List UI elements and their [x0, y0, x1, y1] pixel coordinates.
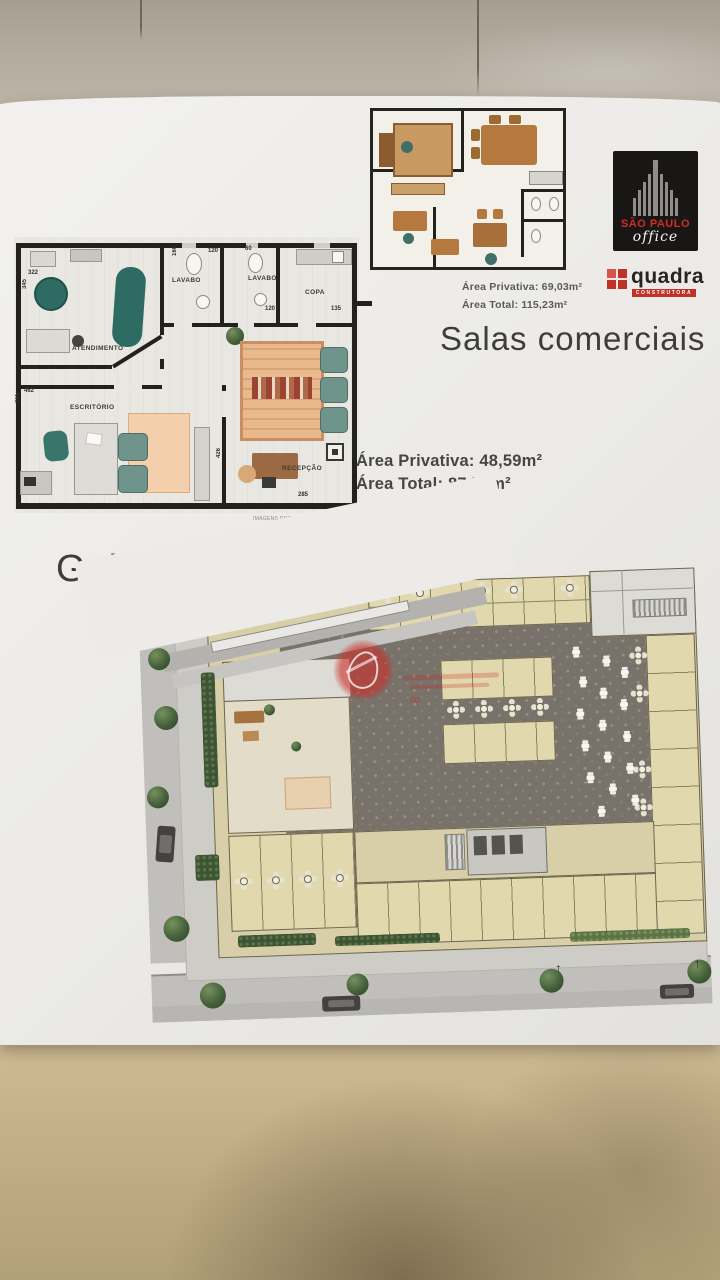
dimension-135: 135 — [331, 306, 341, 312]
logo-office-script: office — [633, 230, 678, 245]
window — [314, 243, 330, 248]
food-court-table — [599, 691, 607, 696]
car-icon — [155, 826, 175, 863]
stairs — [632, 598, 687, 618]
sink — [196, 295, 210, 309]
toilet — [549, 197, 559, 211]
dental-chair — [111, 266, 147, 348]
guest-chair — [477, 209, 487, 219]
cabinet — [70, 249, 102, 262]
plan-wall — [521, 219, 563, 222]
guest-armchair — [118, 465, 148, 493]
plan-wall — [276, 243, 280, 327]
plan-wall — [461, 111, 464, 169]
door-opening — [114, 385, 142, 389]
food-court-table — [621, 670, 629, 675]
food-court-table — [572, 650, 580, 655]
car-icon — [322, 995, 361, 1011]
food-court-table — [602, 658, 610, 663]
tile-grout-line — [140, 0, 142, 40]
room-label-escritorio: ESCRITÓRIO — [70, 404, 114, 411]
reception-desk — [473, 223, 507, 247]
red-grid-icon — [607, 269, 628, 290]
top-plan-area-privativa: Área Privativa: 69,03m² — [462, 278, 582, 296]
meeting-chair — [509, 115, 521, 124]
stairs — [444, 834, 465, 871]
guest-armchair — [118, 433, 148, 461]
armchair — [320, 377, 348, 403]
workstation-desk — [431, 239, 459, 255]
meeting-chair — [471, 129, 480, 141]
armchair — [320, 347, 348, 373]
dimension-426: 426 — [216, 448, 222, 458]
small-floor-plan — [370, 108, 566, 270]
desk-papers — [85, 432, 103, 446]
food-court-table — [598, 809, 606, 814]
quadra-logo: quadra — [607, 267, 704, 290]
developer-name: quadra — [631, 267, 704, 287]
reception-chair — [238, 465, 256, 483]
door-opening — [222, 391, 226, 417]
car-icon — [660, 984, 694, 999]
meeting-table — [481, 125, 537, 165]
room-label-lavabo1: LAVABO — [172, 277, 201, 284]
arrow-up-icon: ↑ — [555, 962, 562, 974]
food-court-table — [579, 679, 587, 684]
dimension-60: 60 — [245, 246, 252, 252]
guest-chair — [493, 209, 503, 219]
dimension-120b: 120 — [265, 306, 275, 312]
main-floor-plan: ATENDIMENTO ESCRITÓRIO LAVABO LAVABO COP… — [14, 237, 359, 513]
sao-paulo-office-logo: SÃO PAULO office — [613, 151, 698, 251]
section-title-salas-comerciais: Salas comerciais — [440, 320, 705, 358]
bookshelf — [391, 183, 445, 195]
plan-wall — [521, 189, 563, 192]
armchair — [320, 407, 348, 433]
toilet — [248, 253, 263, 273]
window — [182, 243, 196, 248]
side-counter — [30, 251, 56, 267]
room-label-recepcao: RECEPÇÃO — [282, 465, 322, 472]
rug-center-motif — [252, 377, 312, 399]
food-court-table — [599, 723, 607, 728]
work-desk — [26, 329, 70, 353]
door-opening — [298, 323, 316, 327]
plan-wall — [16, 365, 112, 369]
dimension-285: 285 — [298, 492, 308, 498]
dimension-120a: 120 — [208, 248, 218, 254]
printer — [24, 477, 36, 486]
food-court-table — [581, 743, 589, 748]
meeting-chair — [471, 147, 480, 159]
top-plan-area-total: Área Total: 115,23m² — [462, 296, 582, 314]
plan-wall — [433, 207, 436, 267]
dimension-345: 345 — [22, 279, 28, 289]
wall-light-reflection — [430, 20, 720, 104]
sink — [254, 293, 267, 306]
gallery-floor-plan: ↑ ↑ ∞ — [138, 567, 713, 1022]
dimension-265: 265 — [15, 393, 21, 403]
plan-wall — [16, 503, 357, 509]
top-plan-area-text: Área Privativa: 69,03m² Área Total: 115,… — [462, 278, 582, 314]
hedge — [195, 854, 220, 881]
storage-cabinet — [194, 427, 210, 501]
dimension-160: 160 — [172, 246, 178, 256]
food-court-table — [623, 734, 631, 739]
food-court-table — [631, 798, 639, 803]
office-desk — [379, 133, 393, 167]
skyline-icon — [633, 160, 678, 216]
plan-wall — [220, 243, 224, 327]
brochure-photo: Área Privativa: 69,03m² Área Total: 115,… — [0, 0, 720, 1280]
dimension-462: 462 — [24, 388, 34, 394]
dimension-322: 322 — [28, 270, 38, 276]
sofa — [234, 711, 264, 724]
interior-rug — [284, 776, 331, 810]
tile-grout-line — [477, 0, 479, 97]
toilet — [531, 197, 541, 211]
watermark-scribble: ∞ — [409, 691, 420, 708]
door-opening — [238, 323, 254, 327]
bathroom-counter — [529, 171, 563, 185]
plan-wall — [16, 243, 21, 509]
main-plan-area-privativa: Área Privativa: 48,59m² — [356, 450, 542, 473]
food-court-table — [604, 754, 612, 759]
developer-tagline: CONSTRUTORA — [632, 289, 696, 297]
coffee-table — [243, 731, 259, 742]
round-table — [34, 277, 68, 311]
toilet — [531, 229, 541, 243]
workstation-desk — [393, 211, 427, 231]
room-label-atendimento: ATENDIMENTO — [72, 345, 123, 352]
plan-wall — [352, 301, 372, 306]
food-court-table — [586, 775, 594, 780]
stool — [485, 253, 497, 265]
printer — [262, 477, 276, 488]
food-court-table — [576, 711, 584, 716]
food-court-table — [620, 702, 628, 707]
meeting-chair — [489, 115, 501, 124]
food-court-table — [626, 766, 634, 771]
plan-wall — [521, 189, 524, 257]
toilet — [186, 253, 202, 275]
office-chair — [403, 233, 414, 244]
office-chair — [42, 430, 69, 462]
kitchen-sink — [332, 251, 344, 263]
room-label-lavabo2: LAVABO — [248, 275, 277, 282]
elevator-core — [466, 827, 548, 876]
side-table-decor — [332, 449, 338, 455]
shop-units-central-bottom — [443, 720, 556, 764]
arrow-up-icon: ↑ — [694, 957, 701, 969]
office-chair — [401, 141, 413, 153]
door-opening — [174, 323, 192, 327]
photographer-shadow — [0, 1040, 720, 1280]
room-label-copa: COPA — [305, 289, 325, 296]
food-court-table — [609, 786, 617, 791]
